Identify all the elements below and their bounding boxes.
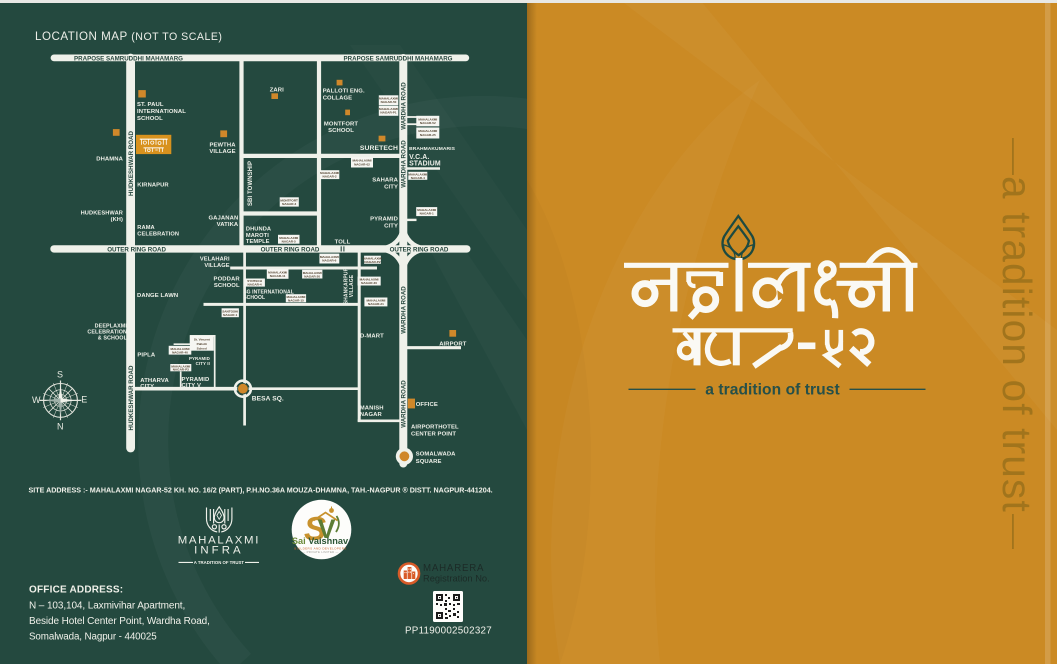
svg-text:MONTFORTSCHOOL: MONTFORTSCHOOL [324,121,358,134]
svg-text:SITE ADDRESS :- MAHALAXMI NAGA: SITE ADDRESS :- MAHALAXMI NAGAR-52 KH. N… [29,487,493,495]
svg-text:Registration No.: Registration No. [423,573,490,583]
svg-text:A TRADITION OF TRUST: A TRADITION OF TRUST [194,560,245,565]
svg-text:MONTFORTNAGAR-3: MONTFORTNAGAR-3 [280,198,298,206]
svg-text:MAHALAXMINAGAR-P1: MAHALAXMINAGAR-P1 [379,107,398,115]
svg-text:MAHALAXMINAGAR-1: MAHALAXMINAGAR-1 [417,208,436,216]
svg-text:PODDARSCHOOL: PODDARSCHOOL [214,277,241,289]
svg-text:MAHALAXMINAGAR-21: MAHALAXMINAGAR-21 [366,299,385,307]
svg-text:VELAHARIVILLAGE: VELAHARIVILLAGE [200,257,230,269]
svg-text:KIRNAPUR: KIRNAPUR [137,182,169,188]
svg-text:BRAHMAKUMARIS: BRAHMAKUMARIS [409,146,455,152]
svg-text:W: W [32,395,41,405]
svg-text:WARDHA ROAD: WARDHA ROAD [401,82,408,130]
svg-text:N: N [57,421,64,431]
svg-text:OFFICE ADDRESS:: OFFICE ADDRESS: [29,585,123,596]
svg-text:MAHALAXMINAGAR-40: MAHALAXMINAGAR-40 [171,347,190,355]
svg-text:WARDHA ROAD: WARDHA ROAD [401,380,408,428]
svg-text:Beside Hotel Center Point, Wa: Beside Hotel Center Point, Wardha Road, [29,616,210,627]
svg-text:BESA SQ.: BESA SQ. [252,395,284,402]
svg-text:Sai Vaishnav: Sai Vaishnav [292,536,349,546]
svg-text:MAHALAXMINAGAR-50: MAHALAXMINAGAR-50 [379,97,398,105]
svg-text:PRAPOSE SAMRUDDHI MAHAMARG: PRAPOSE SAMRUDDHI MAHAMARG [74,55,183,62]
svg-text:MAHALAXMINAGAR-P2: MAHALAXMINAGAR-P2 [363,256,382,263]
svg-text:PP1190002502327: PP1190002502327 [405,626,492,637]
svg-text:PRAPOSE SAMRUDDHI MAHAMARG: PRAPOSE SAMRUDDHI MAHAMARG [344,55,453,62]
svg-text:S: S [57,369,63,379]
svg-text:HUDKESHWAR ROAD: HUDKESHWAR ROAD [128,130,135,195]
svg-text:MAHALAXMINAGAR-P3: MAHALAXMINAGAR-P3 [171,364,190,371]
svg-text:AIRPORT: AIRPORT [439,341,467,347]
svg-text:MAHALAXMINAGAR-52: MAHALAXMINAGAR-52 [418,117,437,125]
svg-text:MAHALAXMINAGAR-02: MAHALAXMINAGAR-02 [353,159,372,167]
svg-text:— PRIVATE LIMITED —: — PRIVATE LIMITED — [302,550,338,554]
svg-text:DANGE LAWN: DANGE LAWN [137,293,178,299]
svg-text:DHUNDAMAROTITEMPLE: DHUNDAMAROTITEMPLE [246,227,271,245]
svg-text:ZARI: ZARI [270,87,284,93]
svg-text:a tradition of trust: a tradition of trust [994,176,1040,513]
svg-text:SURETECH: SURETECH [360,145,398,152]
svg-text:SBI TOWNSHIP: SBI TOWNSHIP [248,161,254,206]
svg-text:TOLL: TOLL [335,239,351,245]
svg-text:MAHALAXMINAGAR-2: MAHALAXMINAGAR-2 [320,171,339,179]
svg-text:OUTER RING ROAD: OUTER RING ROAD [390,246,449,253]
svg-text:PIPLA: PIPLA [137,353,155,359]
svg-text:MAHALAXMINAGAR-4: MAHALAXMINAGAR-4 [408,172,427,179]
svg-text:OUTER RING ROAD: OUTER RING ROAD [261,246,320,253]
svg-text:MANISHNAGAR: MANISHNAGAR [360,405,384,418]
svg-text:SANTOSHINAGAR-1: SANTOSHINAGAR-1 [222,309,238,317]
svg-text:D-MART: D-MART [360,334,384,340]
svg-text:OFFICE: OFFICE [416,402,438,408]
svg-text:Somalwada, Nagpur - 440025: Somalwada, Nagpur - 440025 [29,632,157,643]
svg-text:WARDHA ROAD: WARDHA ROAD [401,286,408,334]
svg-text:a tradition of trust: a tradition of trust [705,382,839,399]
svg-text:MAHALAXMINAGAR-20: MAHALAXMINAGAR-20 [303,271,322,279]
svg-text:MAHARERA: MAHARERA [423,563,484,574]
svg-text:MAHALAXMINAGAR-15: MAHALAXMINAGAR-15 [286,295,305,302]
svg-text:MAHALAXMINAGAR-30: MAHALAXMINAGAR-30 [360,278,379,286]
svg-text:AIRPORTHOTELCENTER POINT: AIRPORTHOTELCENTER POINT [411,424,459,437]
svg-text:E: E [81,395,87,405]
svg-text:MAHALAXMINAGAR-25: MAHALAXMINAGAR-25 [418,129,437,137]
svg-text:HUDKESHWAR ROAD: HUDKESHWAR ROAD [128,365,135,430]
svg-text:MAHALAXMINAGAR-5: MAHALAXMINAGAR-5 [279,236,298,244]
svg-text:OUTER RING ROAD: OUTER RING ROAD [107,246,166,253]
svg-text:SYNTECHNAGAR-4: SYNTECHNAGAR-4 [247,279,263,286]
svg-text:DHAMNA: DHAMNA [96,156,123,162]
svg-text:PEWTHAVILLAGE: PEWTHAVILLAGE [209,142,236,155]
svg-text:MAHALAXMINAGAR-6: MAHALAXMINAGAR-6 [320,255,339,263]
svg-text:WARDHA ROAD: WARDHA ROAD [401,140,408,188]
svg-text:INFRA: INFRA [194,544,244,556]
svg-text:MAHALAXMINAGAR-11: MAHALAXMINAGAR-11 [268,271,287,279]
svg-text:LOCATION MAP (NOT TO SCALE): LOCATION MAP (NOT TO SCALE) [35,30,222,43]
svg-text:N – 103,104, Laxmivihar Apartm: N – 103,104, Laxmivihar Apartment, [29,601,185,612]
